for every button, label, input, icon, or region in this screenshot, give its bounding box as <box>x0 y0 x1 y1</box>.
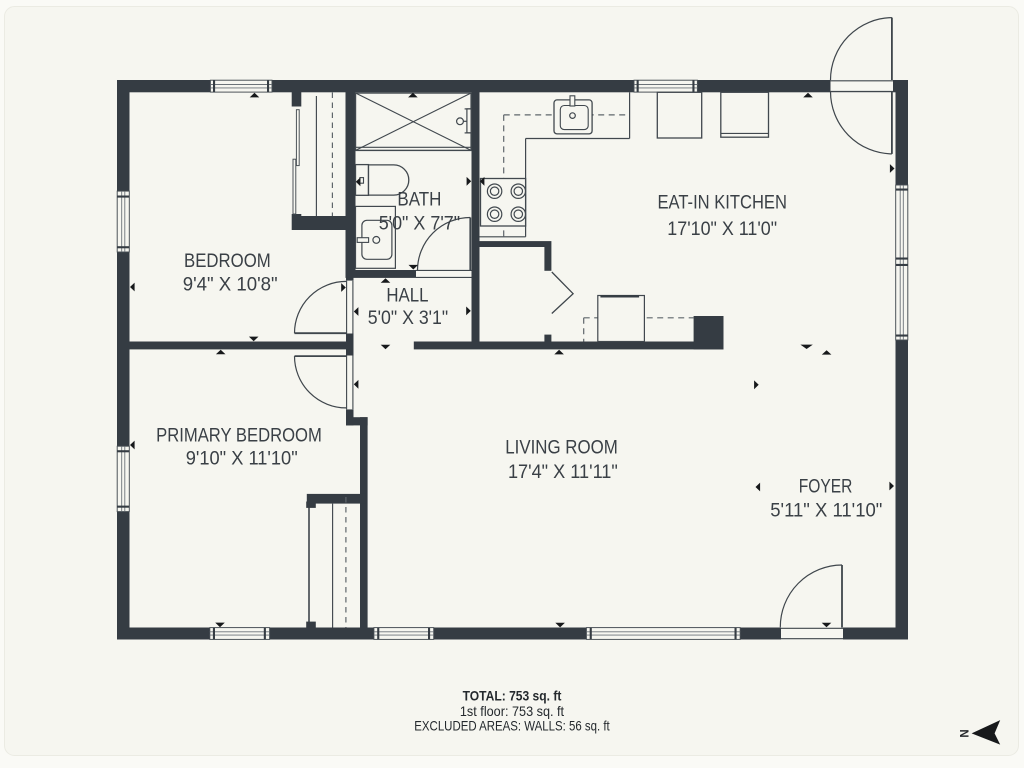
svg-text:FOYER: FOYER <box>799 476 853 497</box>
svg-text:TOTAL: 753 sq. ft: TOTAL: 753 sq. ft <box>463 689 562 704</box>
svg-text:EAT-IN KITCHEN: EAT-IN KITCHEN <box>658 192 787 213</box>
svg-text:EXCLUDED AREAS: WALLS: 56 sq.: EXCLUDED AREAS: WALLS: 56 sq. ft <box>414 719 610 734</box>
svg-text:17'4" X 11'11": 17'4" X 11'11" <box>508 462 618 483</box>
svg-text:5'0" X 7'7": 5'0" X 7'7" <box>379 213 460 234</box>
svg-text:9'4" X 10'8": 9'4" X 10'8" <box>183 274 278 295</box>
svg-text:5'0" X 3'1": 5'0" X 3'1" <box>368 308 448 329</box>
svg-text:HALL: HALL <box>386 285 428 306</box>
svg-text:PRIMARY BEDROOM: PRIMARY BEDROOM <box>156 426 322 447</box>
svg-text:LIVING ROOM: LIVING ROOM <box>505 438 618 459</box>
svg-text:BEDROOM: BEDROOM <box>184 251 271 272</box>
svg-text:5'11" X 11'10": 5'11" X 11'10" <box>770 500 882 521</box>
svg-text:1st floor: 753 sq. ft: 1st floor: 753 sq. ft <box>460 704 564 719</box>
svg-text:BATH: BATH <box>397 189 441 210</box>
svg-text:N: N <box>959 729 971 737</box>
svg-text:17'10" X 11'0": 17'10" X 11'0" <box>667 219 777 240</box>
svg-text:9'10" X 11'10": 9'10" X 11'10" <box>186 449 298 470</box>
